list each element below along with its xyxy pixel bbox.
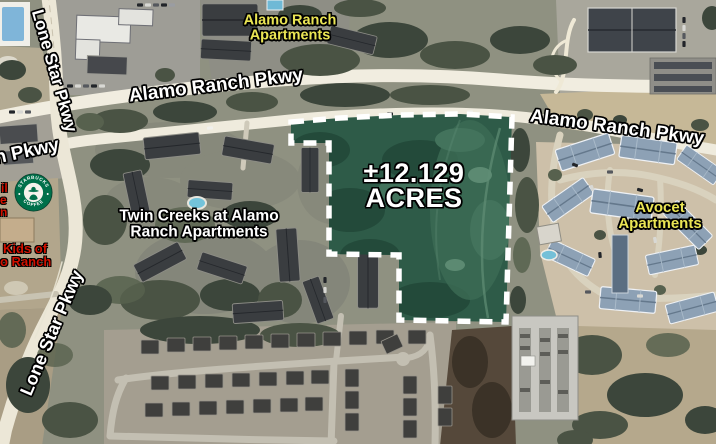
acreage-unit: ACRES	[365, 183, 462, 213]
place-label-line: Apartments	[250, 28, 331, 44]
place-label-twin-creeks: Twin Creeks at Alamo Ranch Apartments	[119, 209, 278, 242]
place-label-line: Ranch Apartments	[130, 224, 267, 241]
place-label-line: Apartments	[618, 215, 701, 232]
partial-label-fragment-3: n	[0, 205, 7, 219]
satellite-imagery	[0, 0, 716, 444]
parcel-acreage-label: ±12.129 ACRES	[364, 161, 465, 211]
place-label-line: Twin Creeks at Alamo	[119, 208, 278, 225]
place-label-alamo-ranch-apartments: Alamo Ranch Apartments	[244, 14, 337, 45]
place-label-line: Alamo Ranch	[244, 13, 337, 29]
starbucks-logo: STARBUCKS COFFEE	[14, 173, 53, 212]
place-label-line: Avocet	[635, 199, 684, 216]
partial-label-o-ranch: o Ranch	[0, 254, 51, 269]
starbucks-logo-icon: STARBUCKS COFFEE	[14, 173, 53, 212]
place-label-avocet-apartments: Avocet Apartments	[618, 200, 701, 232]
aerial-map: Lone Star Pkwy Alamo Ranch Pkwy n Pkwy A…	[0, 0, 716, 444]
electrical-substation	[512, 316, 578, 420]
